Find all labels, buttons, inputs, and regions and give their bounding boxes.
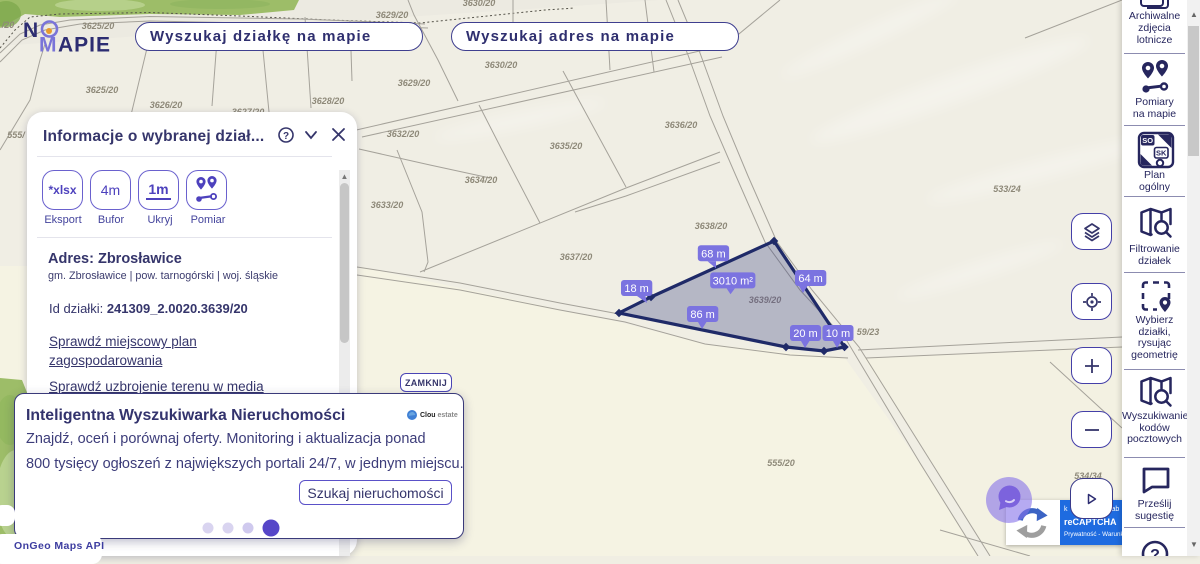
- svg-text:SO: SO: [1142, 136, 1153, 145]
- svg-text:3630/20: 3630/20: [485, 60, 518, 70]
- svg-text:/20: /20: [1, 20, 15, 30]
- svg-text:?: ?: [283, 131, 289, 142]
- svg-text:3628/20: 3628/20: [312, 96, 345, 106]
- svg-text:3637/20: 3637/20: [560, 252, 593, 262]
- svg-text:3010 m²: 3010 m²: [713, 276, 754, 288]
- svg-text:533/24: 533/24: [993, 184, 1021, 194]
- svg-text:3630/20: 3630/20: [463, 0, 496, 8]
- svg-text:M: M: [39, 34, 57, 57]
- svg-text:86 m: 86 m: [690, 309, 714, 321]
- svg-text:APIE: APIE: [58, 34, 111, 57]
- svg-text:18 m: 18 m: [624, 283, 648, 295]
- svg-text:SK: SK: [1156, 149, 1167, 158]
- svg-text:64 m: 64 m: [798, 273, 822, 285]
- svg-text:555/: 555/: [7, 130, 26, 140]
- svg-text:3633/20: 3633/20: [371, 200, 404, 210]
- svg-text:?: ?: [1150, 547, 1160, 556]
- svg-text:20 m: 20 m: [793, 328, 817, 340]
- svg-text:68 m: 68 m: [701, 248, 725, 260]
- svg-text:59/23: 59/23: [857, 327, 880, 337]
- svg-text:3629/20: 3629/20: [398, 78, 431, 88]
- svg-text:3626/20: 3626/20: [150, 100, 183, 110]
- svg-text:3636/20: 3636/20: [665, 120, 698, 130]
- svg-text:3629/20: 3629/20: [376, 10, 409, 20]
- svg-text:3632/20: 3632/20: [387, 129, 420, 139]
- svg-text:555/20: 555/20: [767, 458, 795, 468]
- svg-text:3635/20: 3635/20: [550, 141, 583, 151]
- svg-text:10 m: 10 m: [826, 328, 850, 340]
- svg-text:3634/20: 3634/20: [465, 175, 498, 185]
- svg-text:3625/20: 3625/20: [86, 85, 119, 95]
- svg-text:3639/20: 3639/20: [749, 295, 782, 305]
- svg-text:N: N: [23, 19, 38, 42]
- svg-text:3638/20: 3638/20: [695, 221, 728, 231]
